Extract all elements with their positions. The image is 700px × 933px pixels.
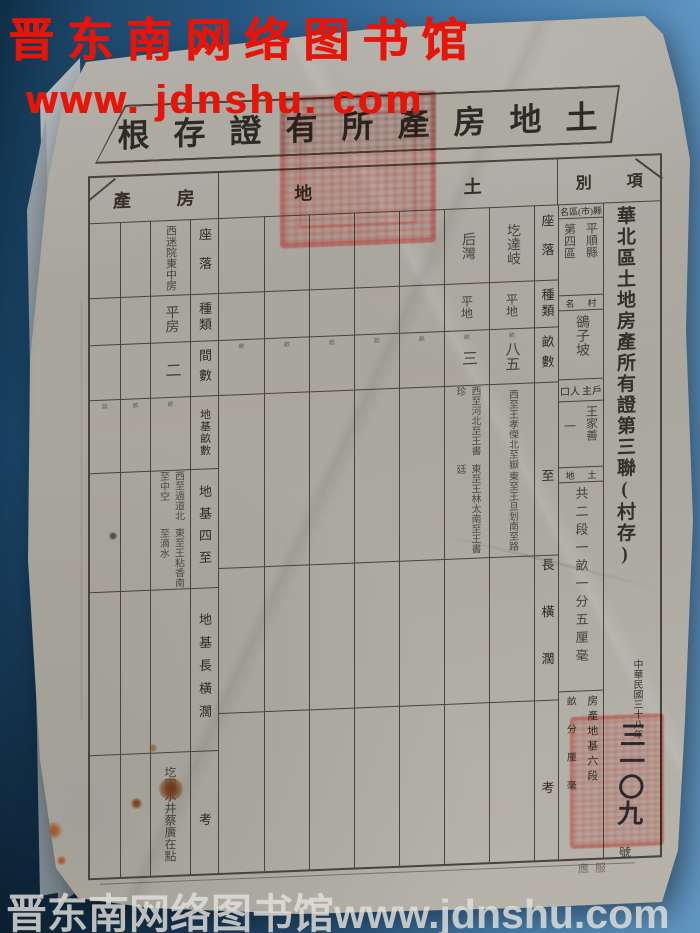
unit-char: 畝	[509, 330, 515, 339]
land-total: 共二段一畝一分五厘毫	[572, 486, 591, 667]
land-location: 后灣	[457, 231, 477, 260]
unit-char: 畝	[238, 341, 244, 350]
land-type: 平地	[459, 295, 476, 320]
band-header-item: 別 項	[557, 155, 660, 204]
land-band: 畝 畝 畝	[218, 204, 559, 873]
owner-value: 王家善	[584, 405, 601, 442]
land-bounds-es: 東至王旦划南至路	[505, 471, 520, 552]
land-label-column: 座落 種類 畝數 四至 長橫濶 備考	[534, 204, 559, 860]
photo-scene: 根存證有所產房地土 產 房 地 土	[0, 0, 700, 933]
band-char: 項	[627, 167, 643, 192]
empty-column: 畝	[120, 221, 150, 877]
region-values: 第四區 平順縣	[559, 218, 603, 297]
house-bounds-wn: 西至過道北至中空	[156, 470, 186, 526]
empty-column: 畝	[399, 209, 444, 866]
band-header-house: 產 房	[90, 173, 218, 223]
watermark-chinese-text: 晋东南网络图书馆	[8, 4, 480, 70]
stain-spot	[158, 778, 184, 800]
field-label: 間數	[195, 348, 214, 389]
unit-char: 畝	[167, 399, 173, 408]
certificate-main-title: 華北區土地房產所有證第三聯(村存)	[611, 205, 638, 658]
house-rooms: 二	[159, 361, 183, 378]
owner-population-values: 一 王家善	[559, 401, 603, 469]
field-label: 長橫濶	[538, 557, 557, 699]
field-label: 地基四至	[195, 484, 214, 573]
certificate-form: 根存證有所產房地土 產 房 地 土	[70, 60, 690, 905]
land-location: 圪達岐	[502, 222, 522, 265]
unit-char: 畝	[132, 400, 138, 409]
field-label: 四至	[538, 382, 557, 556]
library-watermark-bottom: 晋东南网络图书馆www.jdnshu.com	[6, 880, 670, 933]
village-value-cell: 鵒子坡	[559, 310, 603, 381]
band-char: 產	[113, 186, 131, 213]
field-label: 種類	[538, 287, 557, 320]
library-watermark-top: 晋东南网络图书馆 www. jdnshu. com	[8, 4, 480, 123]
land-entry-column: 后灣 平地 畝三 東至王林太南至王書廷 西至河北至王書珍	[444, 207, 489, 864]
land-area: 八五	[502, 341, 523, 372]
house-band: 畝 畝 西迷院東中房 平房 二 畝	[90, 218, 218, 878]
watermark-url-text: www. jdnshu. com	[26, 78, 480, 123]
field-label: 備考	[195, 751, 214, 874]
unit-char: 畝	[329, 337, 335, 346]
empty-column: 畝	[309, 213, 354, 870]
owner-population-labels: 口人主戶	[559, 379, 603, 403]
field-label: 座落	[538, 213, 557, 272]
faint-print: 應服	[578, 859, 612, 876]
village-value: 鵒子坡	[571, 314, 591, 357]
unit-char: 畝	[102, 401, 108, 410]
land-bounds-es: 東至王林太南至王書廷	[452, 463, 482, 559]
stain-spot	[56, 856, 67, 865]
land-total-cell: 共二段一畝一分五厘毫	[559, 482, 603, 693]
unit-char: 畝	[464, 332, 470, 341]
stain-spot	[44, 822, 63, 839]
house-bounds-es: 東至王粘香南至滴水	[156, 527, 186, 590]
land-area: 三	[455, 350, 479, 367]
band-char: 房	[177, 183, 195, 210]
district-value: 第四區	[562, 223, 579, 260]
document-paper: 根存證有所產房地土 產 房 地 土	[0, 0, 700, 933]
unit-char: 畝	[374, 336, 380, 345]
house-label-column: 座落 種類 間數 地基畝數 地基四至 地基長橫濶 備考	[190, 218, 218, 874]
red-seal-stamp-bottom	[570, 713, 664, 849]
field-label: 種類	[195, 301, 214, 334]
field-label: 備考	[538, 700, 557, 860]
field-label: 地基長橫濶	[195, 612, 214, 728]
land-bounds-wn: 西至王孝傑北至嶽	[505, 389, 520, 470]
county-value: 平順縣	[584, 222, 601, 259]
house-location: 西迷院東中房	[163, 224, 179, 291]
land-entry-column: 圪達岐 平地 畝八五 東至王旦划南至路 西至王孝傑北至嶽	[489, 205, 534, 862]
house-type: 平房	[161, 305, 181, 334]
unit-char: 畝	[284, 339, 290, 348]
empty-column: 畝	[90, 222, 120, 878]
stain-spot	[108, 532, 118, 540]
land-bounds-wn: 西至河北至王書珍	[452, 385, 482, 462]
empty-column: 畝	[354, 211, 399, 868]
land-type: 平地	[504, 293, 521, 318]
field-label: 地基畝數	[197, 408, 213, 457]
band-char: 土	[464, 172, 482, 199]
population-value: 一	[562, 420, 579, 433]
empty-column: 畝	[219, 216, 264, 873]
band-char: 別	[576, 169, 592, 194]
field-label: 畝數	[538, 334, 557, 375]
unit-char: 畝	[419, 334, 425, 343]
stain-spot	[148, 744, 158, 752]
field-label: 座落	[195, 227, 214, 286]
paper-surface: 根存證有所產房地土 產 房 地 土	[0, 0, 700, 933]
empty-column: 畝	[264, 214, 309, 871]
stain-spot	[130, 798, 143, 809]
